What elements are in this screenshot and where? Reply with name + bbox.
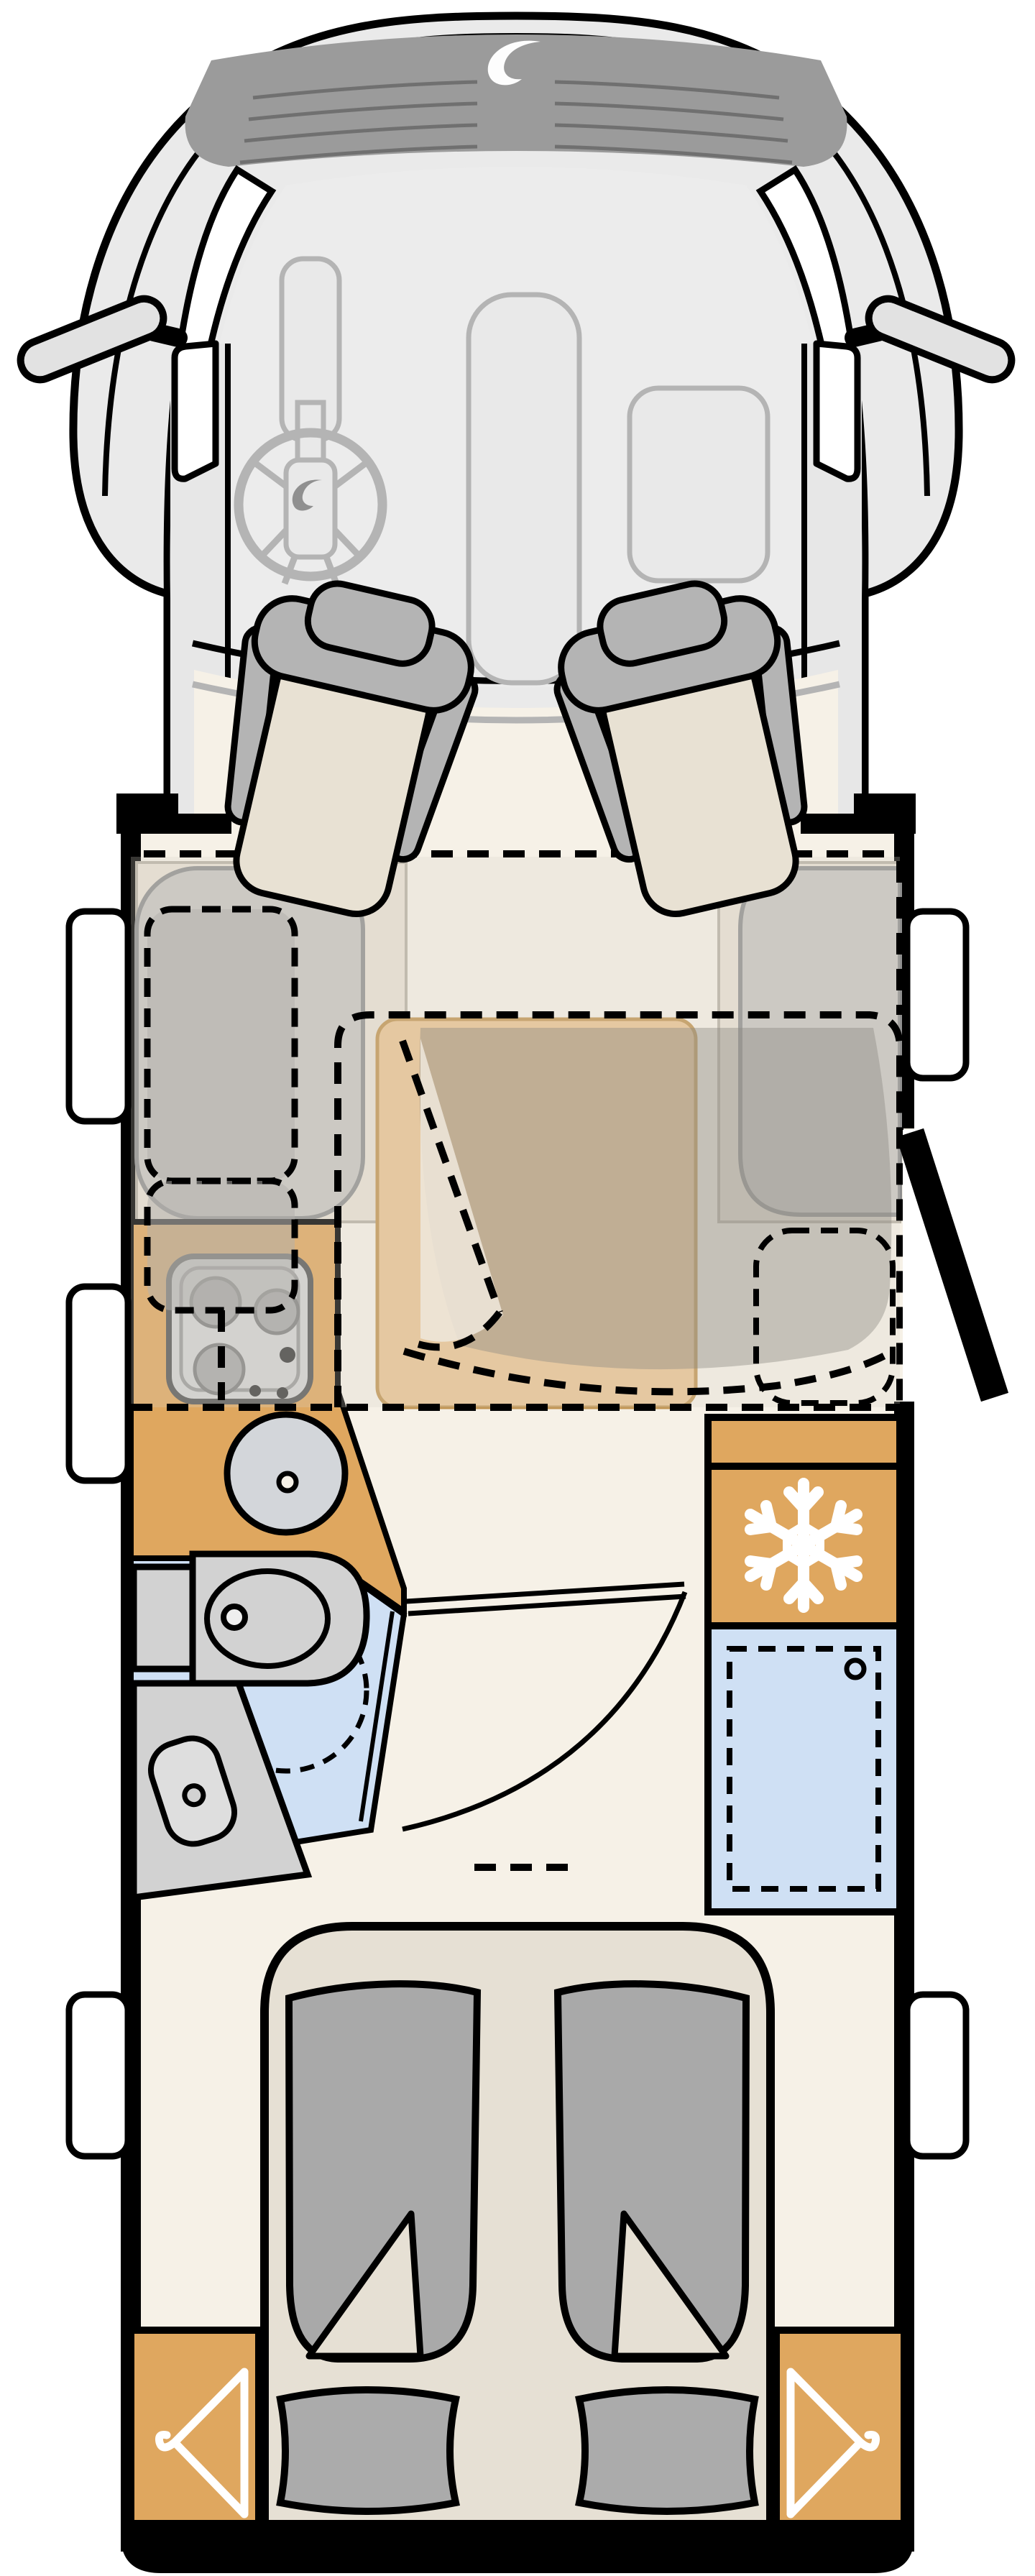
vent-band <box>185 34 847 167</box>
pillow-right <box>579 2390 755 2511</box>
faucet-dot <box>279 1473 296 1491</box>
right-rear-window <box>907 1995 966 2156</box>
right-cab-door-window <box>816 344 857 479</box>
motorhome-floorplan <box>0 0 1035 2576</box>
bathroom-vanity <box>134 1567 194 1669</box>
left-kitchen-window <box>69 1287 128 1481</box>
right-lounge-window <box>907 911 966 1078</box>
center-console <box>469 295 579 683</box>
habitation-area <box>69 793 995 2573</box>
cab <box>73 16 959 835</box>
left-rear-window <box>69 1995 128 2156</box>
left-lounge-window <box>69 911 128 1121</box>
steering-hub <box>286 460 335 557</box>
counter-over-fridge <box>708 1417 900 1466</box>
pillow-left <box>280 2390 456 2511</box>
wardrobe-mid <box>708 1626 900 1912</box>
toilet-flush <box>224 1606 245 1628</box>
entry-door-open <box>903 1130 995 1402</box>
rear-bumper <box>121 2520 914 2573</box>
galley-right-block <box>708 1417 900 1912</box>
left-cab-door-window <box>175 344 216 479</box>
kitchen-sink <box>227 1414 345 1532</box>
glovebox <box>630 388 768 581</box>
